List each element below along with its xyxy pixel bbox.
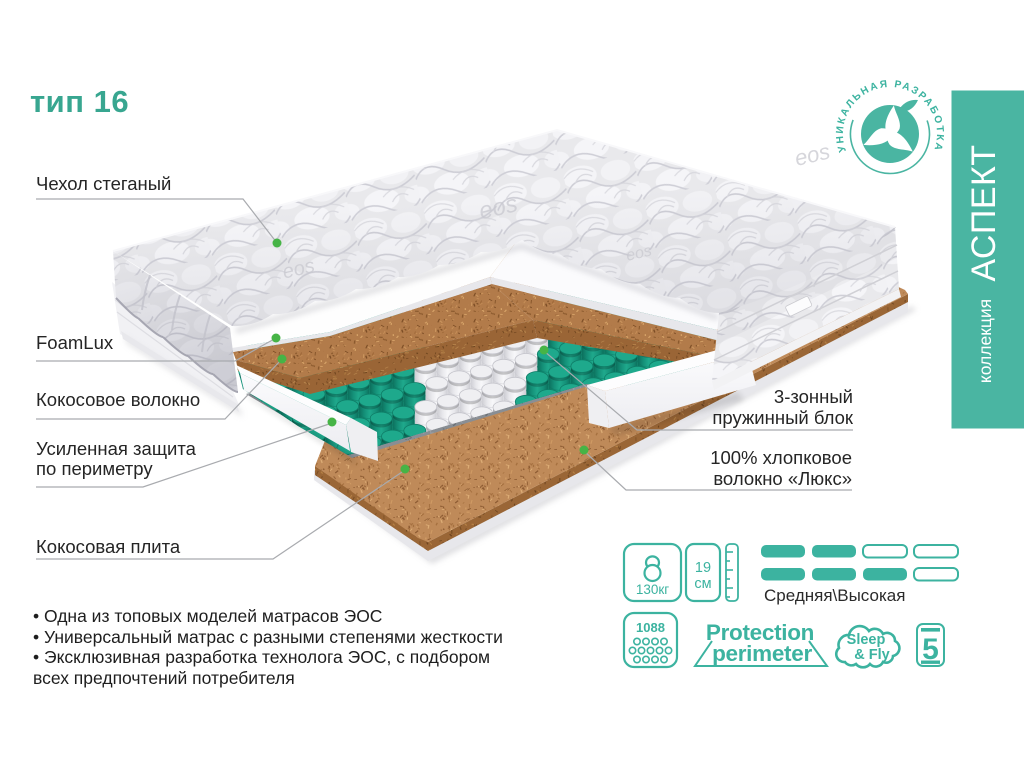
svg-text:100% хлопковое: 100% хлопковое xyxy=(710,447,852,468)
svg-text:3-зонный: 3-зонный xyxy=(774,386,853,407)
svg-text:пружинный блок: пружинный блок xyxy=(712,407,854,428)
svg-text:perimeter: perimeter xyxy=(712,641,812,666)
svg-text:Кокосовое волокно: Кокосовое волокно xyxy=(36,389,200,410)
svg-text:Кокосовая плита: Кокосовая плита xyxy=(36,536,181,557)
svg-text:Средняя\Высокая: Средняя\Высокая xyxy=(764,586,905,605)
svg-text:FoamLux: FoamLux xyxy=(36,332,114,353)
svg-text:волокно «Люкс»: волокно «Люкс» xyxy=(713,468,852,489)
svg-text:Sleep: Sleep xyxy=(847,632,886,648)
svg-text:• Одна из топовых моделей матр: • Одна из топовых моделей матрасов ЭОС xyxy=(33,606,382,626)
svg-text:19: 19 xyxy=(695,560,711,576)
svg-text:тип 16: тип 16 xyxy=(30,84,129,119)
svg-text:АСПЕКТ: АСПЕКТ xyxy=(965,144,1003,281)
svg-text:• Эксклюзивная разработка техн: • Эксклюзивная разработка технолога ЭОС,… xyxy=(33,647,490,667)
svg-text:всех предпочтений потребителя: всех предпочтений потребителя xyxy=(33,668,295,688)
svg-text:1088: 1088 xyxy=(636,620,665,635)
svg-text:Усиленная защита: Усиленная защита xyxy=(36,438,197,459)
svg-text:130кг: 130кг xyxy=(636,582,669,597)
svg-text:по периметру: по периметру xyxy=(36,458,153,479)
svg-text:& Fly: & Fly xyxy=(854,647,889,663)
svg-text:Чехол стеганый: Чехол стеганый xyxy=(36,173,171,194)
svg-text:• Универсальный матрас с разны: • Универсальный матрас с разными степеня… xyxy=(33,627,503,647)
svg-text:см: см xyxy=(694,576,711,592)
svg-text:коллекция: коллекция xyxy=(975,299,995,383)
